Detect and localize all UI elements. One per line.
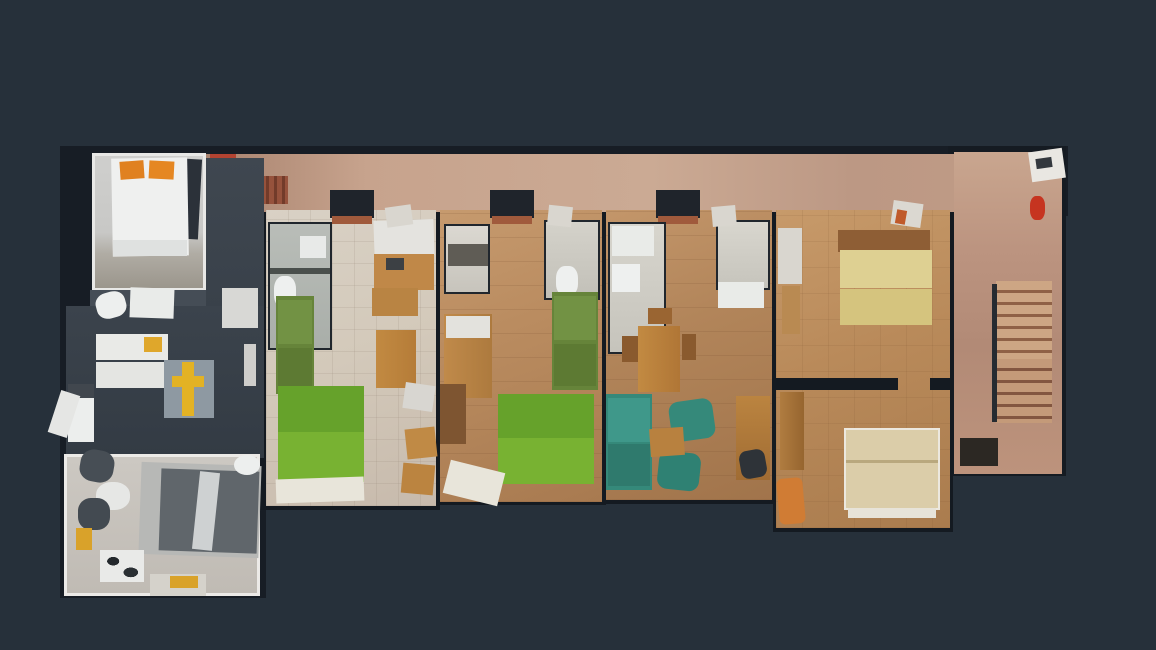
unit2-bed-bottom	[498, 438, 594, 484]
unit3-dining-table	[638, 326, 680, 392]
fire-extinguisher	[1030, 196, 1045, 220]
left-bed-pillow-1	[119, 160, 144, 180]
cow-rug	[100, 550, 144, 582]
unit3-chair-right	[682, 334, 696, 360]
bedroom2-yellow-item	[76, 528, 92, 550]
unit3-shower-tray	[718, 282, 764, 308]
stairs-doormat	[960, 438, 998, 466]
unit1-bed-bottom	[278, 432, 364, 482]
unit2-door-frame	[492, 216, 532, 224]
unit4-bed1-top	[840, 250, 932, 288]
unit2-shelf-low	[440, 384, 466, 444]
unit4-headboard	[838, 230, 930, 252]
unit1-bed-sheet	[276, 476, 365, 503]
unit3-sink	[612, 264, 640, 292]
unit1-bathroom-divider	[270, 268, 330, 274]
unit1-kitchenette-item	[386, 258, 404, 270]
unit1-sofa-cushion-bottom	[278, 348, 312, 390]
floorplan-canvas[interactable]	[0, 0, 1156, 650]
unit1-chair-2	[405, 427, 438, 460]
kitchen-counter-2	[96, 362, 166, 388]
unit1-sofa-cushion-top	[278, 300, 312, 344]
unit1-sink	[300, 236, 326, 258]
unit2-sofa-cushion-bottom	[554, 344, 596, 386]
unit3-entry-door	[656, 190, 700, 218]
unit1-door-frame	[332, 216, 372, 224]
unit4-bed2-foot-sheet	[848, 508, 936, 518]
unit3-shower-room	[716, 220, 770, 290]
unit2-bed-top	[498, 394, 594, 438]
unit4-bed1-bottom	[840, 289, 932, 325]
unit1-chair-3	[401, 463, 435, 496]
unit3-chair-top	[648, 308, 672, 324]
stairs-handrail	[992, 284, 997, 422]
unit4-wood-strip	[782, 286, 800, 334]
washing-machine	[222, 288, 258, 328]
unit4-dresser	[780, 392, 804, 470]
stairs-lower-flight	[996, 359, 1052, 423]
table-runner-vertical	[182, 362, 194, 416]
left-bed-fold	[113, 240, 187, 256]
unit3-bathtub	[612, 226, 654, 256]
unit2-sofa-cushion-top	[554, 296, 596, 340]
bedroom2-pillow	[234, 455, 260, 475]
table-runner-horizontal	[172, 376, 204, 387]
unit4-divider-wall-right	[930, 378, 950, 390]
left-bed-pillow-2	[149, 160, 175, 179]
unit2-entry-door	[490, 190, 534, 218]
unit3-desk-chair	[738, 448, 768, 480]
unit3-coffee-table	[649, 427, 685, 457]
unit3-chair-left	[622, 336, 638, 362]
unit2-closet-shelf	[448, 244, 488, 266]
unit4-divider-wall-left	[776, 378, 898, 390]
bedroom2-chair-3	[78, 498, 110, 530]
unit1-chair-1	[402, 382, 435, 412]
unit1-entry-door	[330, 190, 374, 218]
unit1-bed-top	[278, 386, 364, 434]
counter-yellow-item	[144, 337, 162, 352]
hall-white-mat	[244, 344, 256, 386]
stairs-upper-flight	[996, 281, 1052, 359]
unit3-sofa-cushion-top	[608, 398, 650, 442]
corridor-mat-2	[547, 205, 573, 227]
side-table-yellow-item	[170, 576, 198, 588]
unit2-counter-sink	[446, 316, 490, 338]
unit1-kitchenette-wood	[374, 254, 434, 290]
unit1-table	[376, 330, 416, 388]
unit4-cabinet	[778, 228, 802, 284]
unit1-wall-shelf	[372, 288, 418, 316]
unit4-bed2	[844, 428, 940, 510]
left-shower	[129, 287, 174, 319]
unit4-orange-chair	[776, 477, 806, 525]
corridor-mat-1	[385, 204, 414, 227]
unit4-bed2-line	[846, 460, 938, 463]
corridor-mat-3	[711, 205, 737, 227]
unit3-sofa-cushion-bottom	[608, 444, 650, 486]
